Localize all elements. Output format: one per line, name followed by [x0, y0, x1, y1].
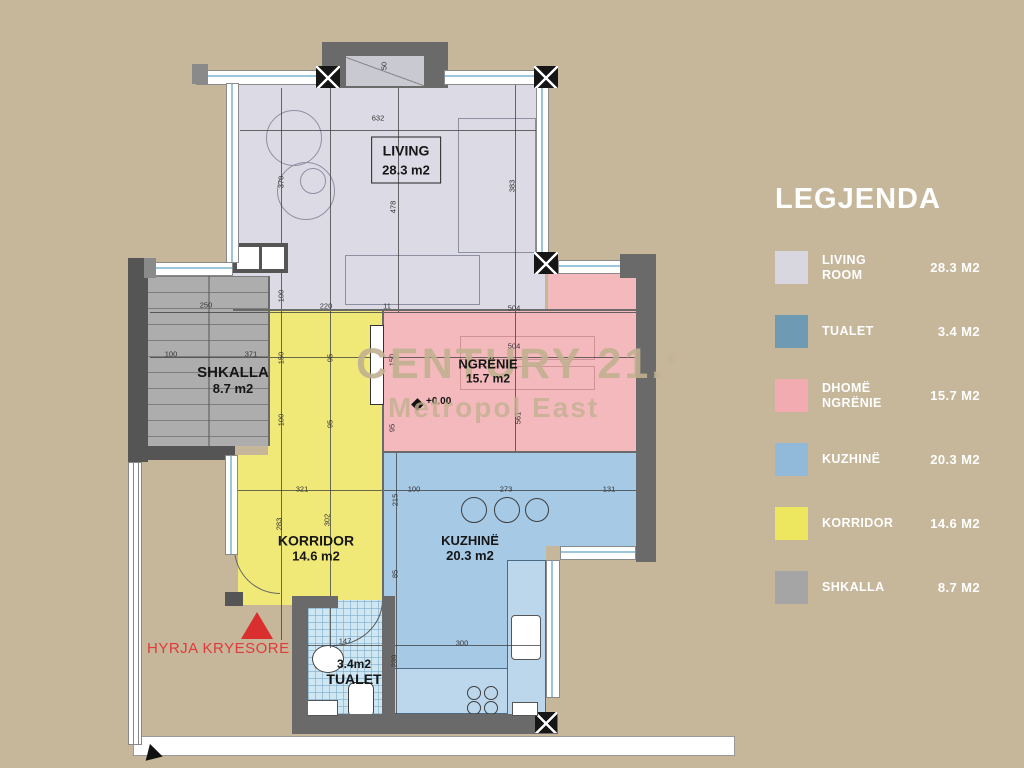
- window-living-left: [226, 83, 239, 263]
- stove-burner-icon: [484, 701, 498, 715]
- window-ngrenie-top: [558, 260, 626, 274]
- shkalla-area: 8.7 m2: [197, 381, 269, 396]
- legend-value: 14.6 M2: [892, 507, 980, 540]
- wall-tualet-left: [292, 596, 308, 734]
- legend-swatch: [775, 315, 808, 348]
- legend-row: KORRIDOR14.6 M2: [775, 507, 980, 540]
- column-detail-divider: [259, 246, 262, 270]
- window-kitchen-right-v: [546, 560, 560, 698]
- ngrenie-name: NGRËNIE: [458, 357, 517, 372]
- room-shkalla: [148, 276, 270, 446]
- toilet-wc-icon: [348, 682, 374, 718]
- stove-burner-icon: [467, 701, 481, 715]
- dim-line: [396, 452, 397, 716]
- floorplan-canvas: +0.00 6323704783835025010037122011100150…: [0, 0, 1024, 768]
- wall-tualet-top: [292, 596, 338, 608]
- korridor-area: 14.6 m2: [278, 549, 354, 564]
- window-stairs-top: [148, 262, 233, 276]
- window-kitchen-right-h: [560, 546, 636, 560]
- left-railing: [128, 462, 142, 745]
- legend-swatch: [775, 571, 808, 604]
- level-marker-label: +0.00: [426, 396, 451, 407]
- dim-line: [240, 130, 538, 131]
- threshold: [512, 702, 538, 716]
- legend-row: TUALET3.4 M2: [775, 315, 980, 348]
- room-korridor-upper: [268, 310, 383, 460]
- boundary: [383, 451, 636, 453]
- corner-post-icon: [534, 66, 558, 88]
- entrance-arrow-icon: [241, 612, 273, 639]
- legend-swatch: [775, 379, 808, 412]
- kitchen-sink-icon: [511, 615, 541, 660]
- legend-swatch: [775, 507, 808, 540]
- bump-inner: [346, 56, 424, 86]
- stove-burner-icon: [467, 686, 481, 700]
- legend-swatch: [775, 251, 808, 284]
- korridor-name: KORRIDOR: [278, 533, 354, 549]
- window-cap: [192, 64, 208, 84]
- wall-stairs-left: [128, 258, 148, 462]
- legend-row: SHKALLA8.7 M2: [775, 571, 980, 604]
- label-tualet: 3.4m2 TUALET: [326, 657, 381, 687]
- room-ngrenie-upper: [548, 274, 636, 312]
- corner-post-icon: [535, 712, 557, 733]
- threshold: [306, 700, 338, 716]
- tualet-name: TUALET: [326, 671, 381, 687]
- legend-row: KUZHINË20.3 M2: [775, 443, 980, 476]
- armchair-icon: [266, 110, 322, 166]
- wall-tualet-right: [383, 596, 395, 716]
- label-living: LIVING 28.3 m2: [371, 137, 441, 184]
- dim-line: [232, 490, 648, 491]
- entrance-label: HYRJA KRYESORE: [147, 640, 290, 657]
- window-cap: [144, 258, 156, 278]
- legend-row: LIVING ROOM28.3 M2: [775, 251, 980, 284]
- legend-row: DHOMË NGRËNIE15.7 M2: [775, 379, 980, 412]
- wall-bottom: [292, 714, 558, 734]
- stool-icon: [461, 497, 487, 523]
- window-living-top-right: [444, 70, 538, 85]
- window-living-top-left: [196, 70, 322, 85]
- registered-icon: ®: [666, 352, 678, 366]
- wall-stairs-bottom: [128, 446, 235, 460]
- window-living-right: [536, 85, 549, 257]
- legend-value: 3.4 M2: [892, 315, 980, 348]
- side-table-icon: [300, 168, 326, 194]
- kuzhine-name: KUZHINË: [441, 533, 499, 548]
- dim-line: [398, 88, 399, 312]
- tualet-area: 3.4m2: [326, 657, 381, 671]
- wardrobe-icon: [458, 118, 536, 253]
- window-korridor-left: [225, 455, 238, 555]
- label-shkalla: SHKALLA 8.7 m2: [197, 364, 269, 396]
- ngrenie-area: 15.7 m2: [458, 372, 517, 386]
- living-name: LIVING: [382, 143, 430, 159]
- label-korridor: KORRIDOR 14.6 m2: [278, 533, 354, 564]
- corner-post-icon: [534, 252, 558, 274]
- dim-line: [330, 88, 331, 648]
- kuzhine-area: 20.3 m2: [441, 548, 499, 563]
- dim-line: [515, 80, 516, 452]
- wall-entrance-post: [225, 592, 243, 606]
- legend-value: 8.7 M2: [892, 571, 980, 604]
- dim-line: [150, 357, 648, 358]
- living-area: 28.3 m2: [382, 163, 430, 178]
- legend-value: 28.3 M2: [892, 251, 980, 284]
- dim-line: [300, 645, 540, 646]
- boundary: [268, 276, 270, 446]
- stove-burner-icon: [484, 686, 498, 700]
- dim-line: [150, 312, 648, 313]
- sofa-icon: [345, 255, 480, 305]
- legend-swatch: [775, 443, 808, 476]
- legend: LEGJENDA LIVING ROOM28.3 M2TUALET3.4 M2D…: [775, 183, 980, 216]
- stool-icon: [494, 497, 520, 523]
- wall-right: [636, 262, 656, 562]
- boundary: [233, 309, 636, 311]
- stool-icon: [525, 498, 549, 522]
- label-ngrenie: NGRËNIE 15.7 m2: [458, 357, 517, 386]
- label-kuzhine: KUZHINË 20.3 m2: [441, 533, 499, 563]
- legend-value: 15.7 M2: [892, 379, 980, 412]
- corner-post-icon: [316, 66, 340, 88]
- ground-band: [133, 736, 735, 756]
- shkalla-name: SHKALLA: [197, 364, 269, 381]
- legend-value: 20.3 M2: [892, 443, 980, 476]
- wall-cabinet: [370, 325, 384, 405]
- legend-rows: LIVING ROOM28.3 M2TUALET3.4 M2DHOMË NGRË…: [775, 183, 980, 613]
